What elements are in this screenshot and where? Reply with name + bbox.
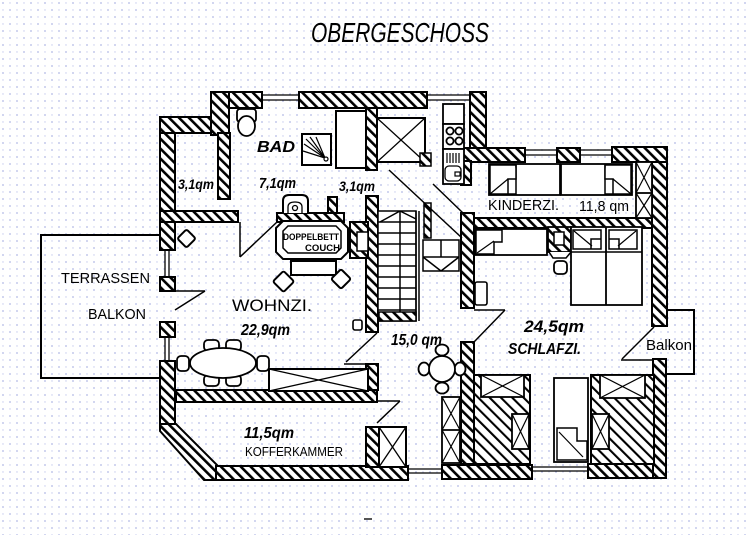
svg-text:KINDERZI.: KINDERZI.	[488, 198, 559, 214]
svg-text:Balkon: Balkon	[646, 337, 692, 354]
svg-text:15,0 qm: 15,0 qm	[391, 332, 442, 349]
svg-text:TERRASSEN: TERRASSEN	[61, 270, 150, 287]
svg-text:BALKON: BALKON	[88, 306, 146, 323]
svg-text:3,1qm: 3,1qm	[178, 177, 214, 192]
svg-text:OBERGESCHOSS: OBERGESCHOSS	[311, 17, 489, 48]
svg-text:SCHLAFZI.: SCHLAFZI.	[508, 341, 581, 358]
svg-text:11,5qm: 11,5qm	[244, 425, 294, 442]
svg-text:DOPPELBETT: DOPPELBETT	[283, 232, 340, 242]
svg-text:3,1qm: 3,1qm	[339, 179, 375, 194]
svg-text:7,1qm: 7,1qm	[259, 175, 296, 192]
svg-text:11,8 qm: 11,8 qm	[579, 198, 629, 215]
svg-text:22,9qm: 22,9qm	[240, 322, 290, 339]
svg-text:WOHNZI.: WOHNZI.	[232, 297, 312, 315]
svg-text:BAD: BAD	[257, 139, 295, 156]
svg-text:COUCH: COUCH	[305, 243, 340, 253]
svg-text:24,5qm: 24,5qm	[523, 317, 584, 336]
svg-text:KOFFERKAMMER: KOFFERKAMMER	[245, 445, 343, 459]
